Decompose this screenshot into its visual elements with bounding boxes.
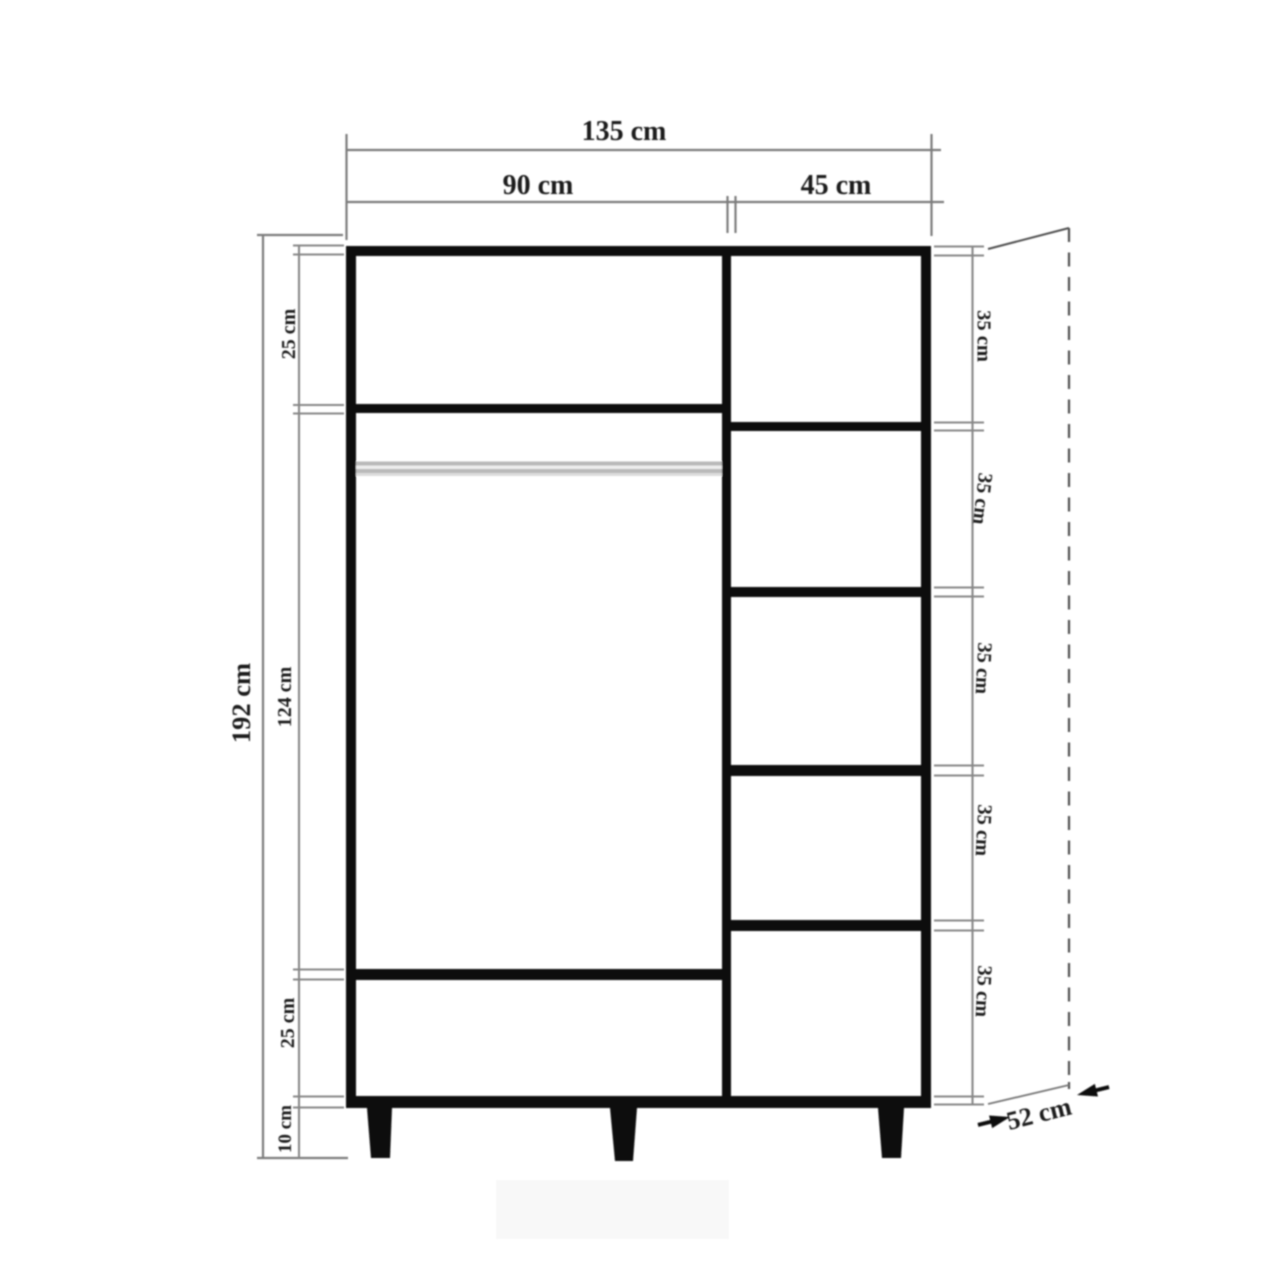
svg-text:90 cm: 90 cm xyxy=(503,170,574,201)
svg-text:135 cm: 135 cm xyxy=(582,116,667,147)
svg-text:35 cm: 35 cm xyxy=(971,965,996,1018)
svg-text:10 cm: 10 cm xyxy=(275,1105,296,1153)
svg-text:45 cm: 45 cm xyxy=(801,170,872,201)
svg-text:192 cm: 192 cm xyxy=(226,663,256,743)
svg-text:124 cm: 124 cm xyxy=(274,666,296,727)
svg-text:35 cm: 35 cm xyxy=(971,804,996,857)
svg-text:25 cm: 25 cm xyxy=(277,997,299,1048)
svg-text:25 cm: 25 cm xyxy=(278,308,300,359)
svg-text:35 cm: 35 cm xyxy=(973,310,995,362)
svg-text:35 cm: 35 cm xyxy=(971,642,996,695)
